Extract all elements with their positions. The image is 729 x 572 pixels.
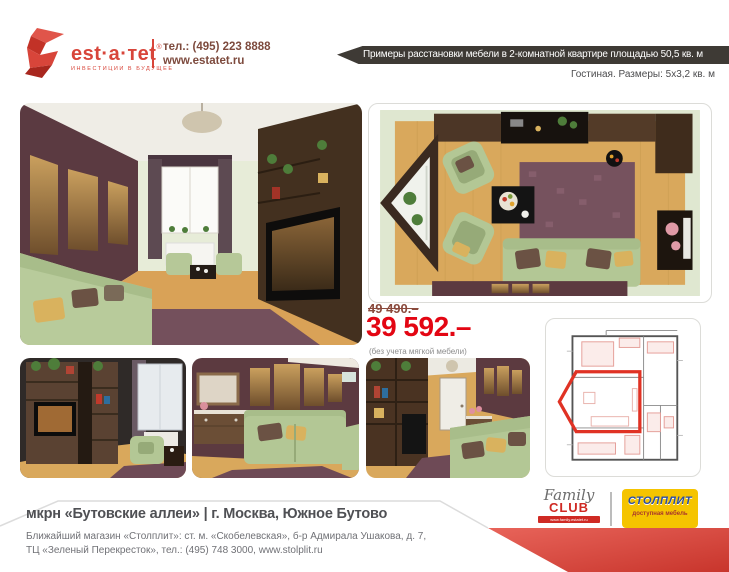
photo-sofa-triptych [192,358,359,478]
family-club-logo: Family CLUB www.family.estatet.ru [538,488,600,523]
partner-logos-divider [610,492,612,526]
stolplit-logo: СТОЛПЛИТ доступная мебель [622,489,698,528]
price-note: (без учета мягкой мебели) [369,347,467,356]
family-club-url: www.family.estatet.ru [538,516,600,523]
header-divider [152,39,154,68]
logo-name: est·a·тet [71,43,156,65]
stolplit-subtitle: доступная мебель [622,511,698,517]
photo-room-top-view [368,103,712,303]
contact-block: тел.: (495) 223 8888 www.estatet.ru [163,40,271,69]
floor-plan-card [545,318,701,477]
photo-shelving-sofa [366,358,530,478]
contact-phone: тел.: (495) 223 8888 [163,40,271,54]
new-price: 39 592.– [366,311,471,343]
footer-title: мкрн «Бутовские аллеи» | г. Москва, Южно… [26,506,387,522]
contact-website: www.estatet.ru [163,54,271,68]
banner-title: Примеры расстановки мебели в 2-комнатной… [337,46,729,64]
logo-tagline: ИНВЕСТИЦИИ В БУДУЩЕЕ [71,67,174,73]
estatet-logo-icon [24,27,68,79]
stolplit-name: СТОЛПЛИТ [622,496,698,507]
banner-subtitle: Гостиная. Размеры: 5x3,2 кв. м [571,69,715,80]
logo-text-block: est·a·тet® ИНВЕСТИЦИИ В БУДУЩЕЕ [71,44,174,73]
flyer-page: est·a·тet® ИНВЕСТИЦИИ В БУДУЩЕЕ тел.: (4… [0,0,729,572]
photo-living-room-main [20,103,362,345]
logo-trademark: ® [156,44,161,51]
footer-address-line1: Ближайший магазин «Столплит»: ст. м. «Ск… [26,531,426,542]
photo-wall-unit-tv [20,358,186,478]
footer-address-line2: ТЦ «Зеленый Перекресток», тел.: (495) 74… [26,545,323,556]
